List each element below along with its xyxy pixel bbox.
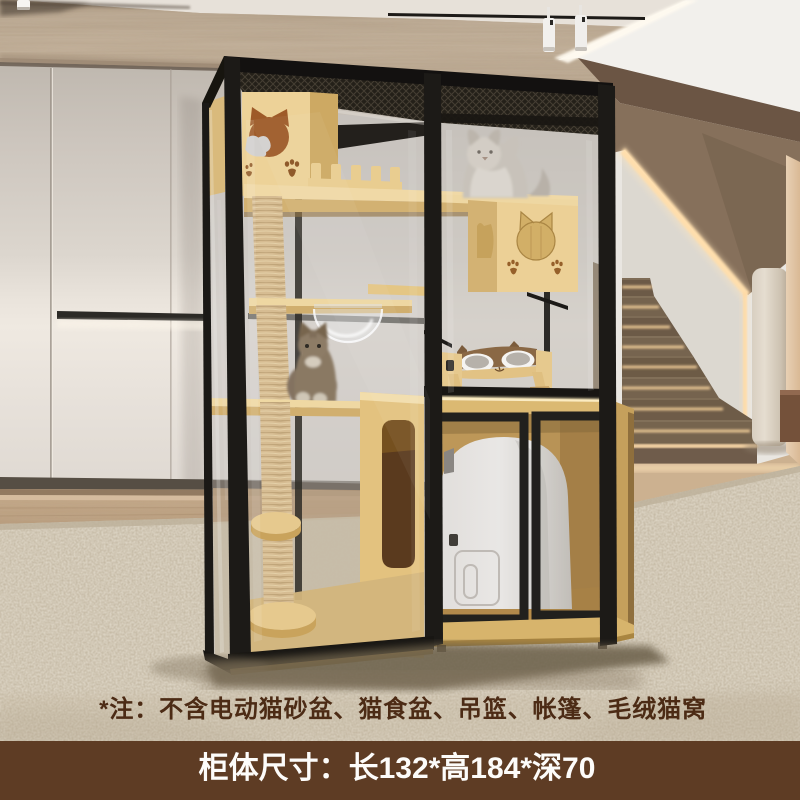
svg-text:柜体尺寸：长132*高184*深70: 柜体尺寸：长132*高184*深70 [199,752,596,785]
svg-text:*注：不含电动猫砂盆、猫食盆、吊篮、帐篷、毛绒猫窝: *注：不含电动猫砂盆、猫食盆、吊篮、帐篷、毛绒猫窝 [99,695,707,723]
